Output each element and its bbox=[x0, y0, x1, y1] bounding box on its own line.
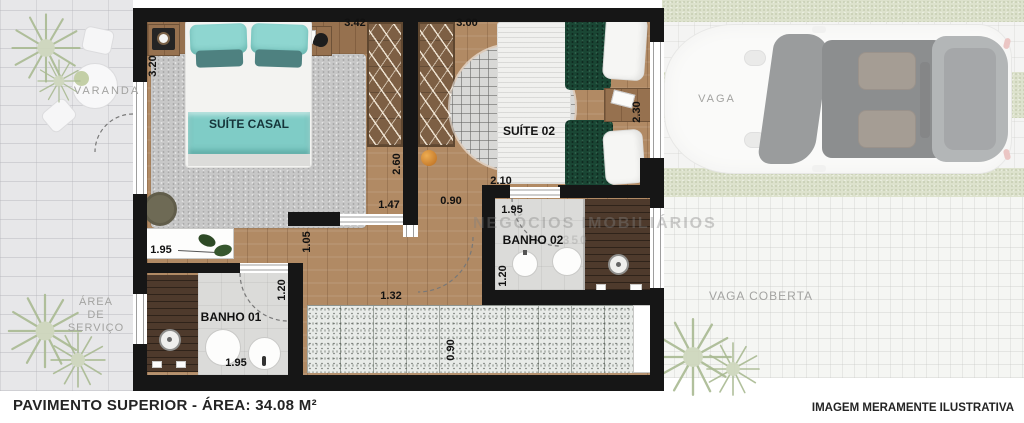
dim-stairs-width: 0.90 bbox=[444, 330, 458, 370]
dim-banho-02-depth: 1.20 bbox=[496, 256, 510, 296]
wall bbox=[133, 375, 662, 391]
room-label-banho-02: BANHO 02 bbox=[493, 233, 573, 247]
varanda-door bbox=[133, 82, 147, 194]
dim-suite-02-corridor: 2.10 bbox=[481, 174, 521, 188]
room-label-area-servico: SERVIÇO bbox=[56, 322, 136, 334]
dim-hall-door: 0.90 bbox=[431, 194, 471, 208]
room-label-varanda: VARANDA bbox=[67, 85, 147, 97]
wall bbox=[650, 288, 664, 391]
room-label-area-servico: DE bbox=[56, 309, 136, 321]
wall bbox=[403, 8, 418, 225]
wall bbox=[288, 263, 303, 375]
watermark: NEGÓCIOS IMOBILIÁRIOS bbox=[473, 215, 693, 233]
wall bbox=[133, 263, 240, 273]
wall bbox=[650, 8, 664, 42]
dim-suite-02-depth: 2.30 bbox=[630, 92, 644, 132]
window bbox=[650, 42, 664, 158]
door-frame bbox=[340, 214, 403, 225]
dim-banho-02-width: 1.95 bbox=[492, 203, 532, 217]
wall bbox=[558, 185, 652, 198]
wall bbox=[288, 212, 340, 226]
disclaimer-text: IMAGEM MERAMENTE ILUSTRATIVA bbox=[714, 402, 1014, 414]
room-label-vaga-coberta: VAGA COBERTA bbox=[700, 289, 822, 303]
plan-title: PAVIMENTO SUPERIOR - ÁREA: 34.08 M² bbox=[13, 397, 317, 414]
dim-hall-lower: 1.32 bbox=[371, 289, 411, 303]
room-label-area-servico: ÁREA bbox=[56, 296, 136, 308]
dim-console-length: 1.95 bbox=[141, 243, 181, 257]
dim-banho-01-width: 1.95 bbox=[216, 356, 256, 370]
door-frame bbox=[403, 225, 418, 237]
dim-suite-casal-depth: 3.20 bbox=[146, 46, 160, 86]
wall bbox=[133, 8, 662, 22]
wall bbox=[650, 158, 664, 208]
wall bbox=[640, 158, 652, 198]
room-label-suite-casal: SUÍTE CASAL bbox=[188, 117, 310, 131]
room-label-banho-01: BANHO 01 bbox=[191, 310, 271, 324]
wall bbox=[133, 8, 147, 82]
door-frame bbox=[510, 187, 560, 198]
dim-passage: 1.05 bbox=[300, 222, 314, 262]
room-label-suite-02: SUÍTE 02 bbox=[489, 124, 569, 138]
dim-hall-upper: 1.47 bbox=[369, 198, 409, 212]
dim-closet-length: 2.60 bbox=[390, 144, 404, 184]
floor-plan-canvas: NEGÓCIOS IMOBILIÁRIOS 33 3350 3.42 3.20 … bbox=[0, 0, 1024, 423]
dim-suite-casal-width: 3.42 bbox=[335, 16, 375, 30]
room-label-vaga: VAGA bbox=[677, 93, 757, 105]
dim-suite-02-width: 3.00 bbox=[447, 16, 487, 30]
dim-banho-01-depth: 1.20 bbox=[275, 270, 289, 310]
